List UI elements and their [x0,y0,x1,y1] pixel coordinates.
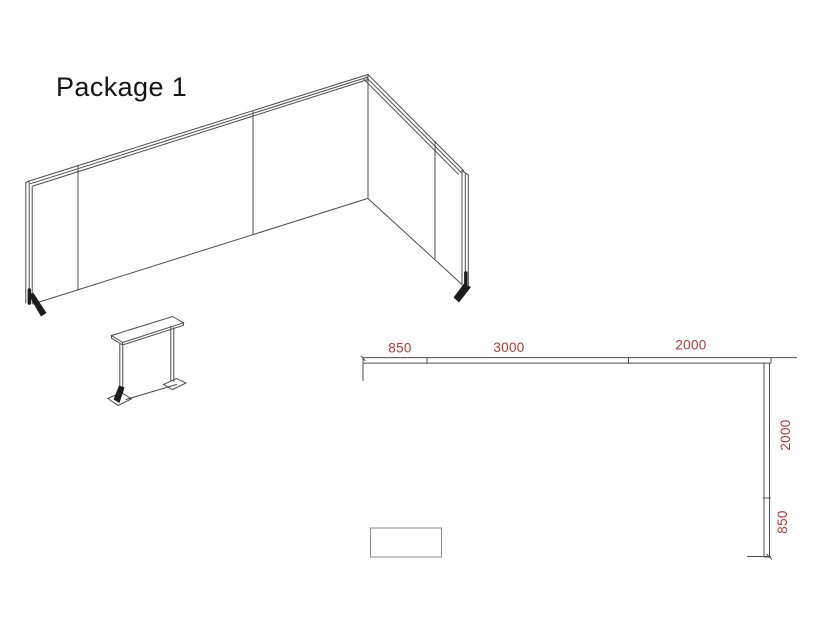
plan-dimensions-top: 850 3000 2000 [388,338,706,356]
wall-feet [28,284,471,317]
wall-top-edge-mid [31,77,369,184]
plan-wall-horizontal [363,358,771,364]
wall-foot-left-icon [28,293,47,317]
return-top-edge-outer [368,75,464,171]
dimension-label-2000-top: 2000 [675,338,706,353]
dimension-label-850-right: 850 [775,510,790,533]
dimension-label-3000-top: 3000 [493,340,524,355]
wall-bottom-edge [33,199,368,305]
wall-foot-right-icon [454,284,472,303]
table-right-leg [171,327,174,382]
wall-top-edge-outer [28,75,369,182]
plan-wall-vertical [764,363,770,557]
isometric-table-drawing [108,317,186,406]
plan-table-footprint [371,528,442,557]
table-foot-left-icon [114,386,125,404]
plan-dimensions-right: 2000 850 [775,419,793,533]
wall-left-profile [26,181,32,305]
table-base-stretcher [126,385,177,400]
page: Package 1 [0,0,823,617]
plan-extension-bottom [747,554,772,560]
dimension-label-2000-right: 2000 [778,419,793,450]
return-top-edge-mid [366,77,461,173]
return-top-edge-inner [364,79,459,174]
dimension-label-850-top: 850 [388,341,411,356]
wall-top-edge-inner [33,80,368,187]
return-bottom-edge [369,199,463,285]
technical-drawing-canvas: 850 3000 2000 2000 850 [0,0,823,617]
isometric-wall-drawing [26,75,469,305]
table-left-leg [120,345,123,393]
floor-plan [361,356,797,560]
wall-right-profile [462,171,468,287]
table-top [112,317,184,343]
